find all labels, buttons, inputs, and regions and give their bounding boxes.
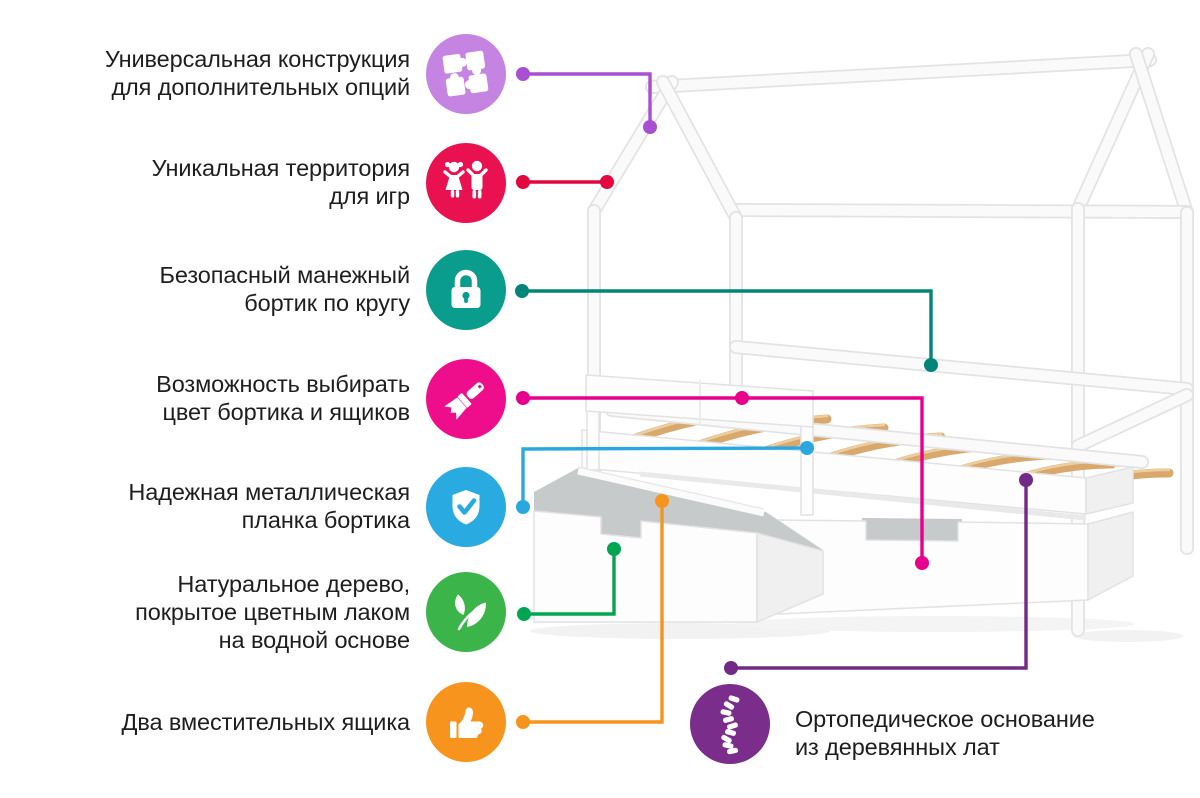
feature-label-universal-construction: Универсальная конструкция для дополнител… [105,45,410,101]
connector-dot-orthopedic-base [724,661,738,675]
connector-dot-natural-wood [607,542,621,556]
drawer-right [778,512,1133,614]
connector-dot-color-choice [915,556,929,570]
connector-dot-metal-plank [800,441,814,455]
shield-check-icon [426,467,506,547]
connector-dot-two-drawers [655,494,669,508]
feature-badge-natural-wood [426,572,506,652]
connector-line-universal-construction [523,74,650,127]
puzzle-icon [426,34,506,114]
feature-badge-safety-rail [426,250,506,330]
connector-dot-play-territory [600,175,614,189]
feature-badge-two-drawers [426,682,506,762]
connector-dot-safety-rail-perimeter [924,358,938,372]
children-icon [426,143,506,223]
feature-label-play-territory: Уникальная территория для игр [152,154,410,210]
feature-badge-orthopedic-base [690,684,770,764]
connector-dot-universal-construction [516,67,530,81]
feature-label-natural-wood: Натуральное дерево, покрытое цветным лак… [135,570,410,654]
connector-dot-two-drawers [516,715,530,729]
feature-label-two-drawers: Два вместительных ящика [122,708,410,736]
leaf-icon [426,572,506,652]
feature-label-safety-rail: Безопасный манежный бортик по кругу [160,261,410,317]
spine-icon [690,684,770,764]
feature-badge-metal-plank [426,467,506,547]
connector-dot-color-choice [516,391,530,405]
feature-badge-play-territory [426,143,506,223]
connector-dot-universal-construction [643,120,657,134]
connector-dot-orthopedic-base [1019,473,1033,487]
connector-dot-color-choice [735,391,749,405]
connector-dot-play-territory [516,175,530,189]
infographic-stage: Универсальная конструкция для дополнител… [0,0,1200,798]
connector-dot-metal-plank [516,500,530,514]
connector-dot-safety-rail-perimeter [515,284,529,298]
feature-badge-color-choice [426,359,506,439]
paintbrush-icon [426,359,506,439]
feature-label-orthopedic-base: Ортопедическое основание из деревянных л… [795,705,1095,761]
connector-dot-natural-wood [517,607,531,621]
thumbs-up-icon [426,682,506,762]
feature-label-color-choice: Возможность выбирать цвет бортика и ящик… [156,370,410,426]
padlock-icon [426,250,506,330]
feature-badge-universal-construction [426,34,506,114]
feature-label-metal-plank: Надежная металлическая планка бортика [128,478,410,534]
